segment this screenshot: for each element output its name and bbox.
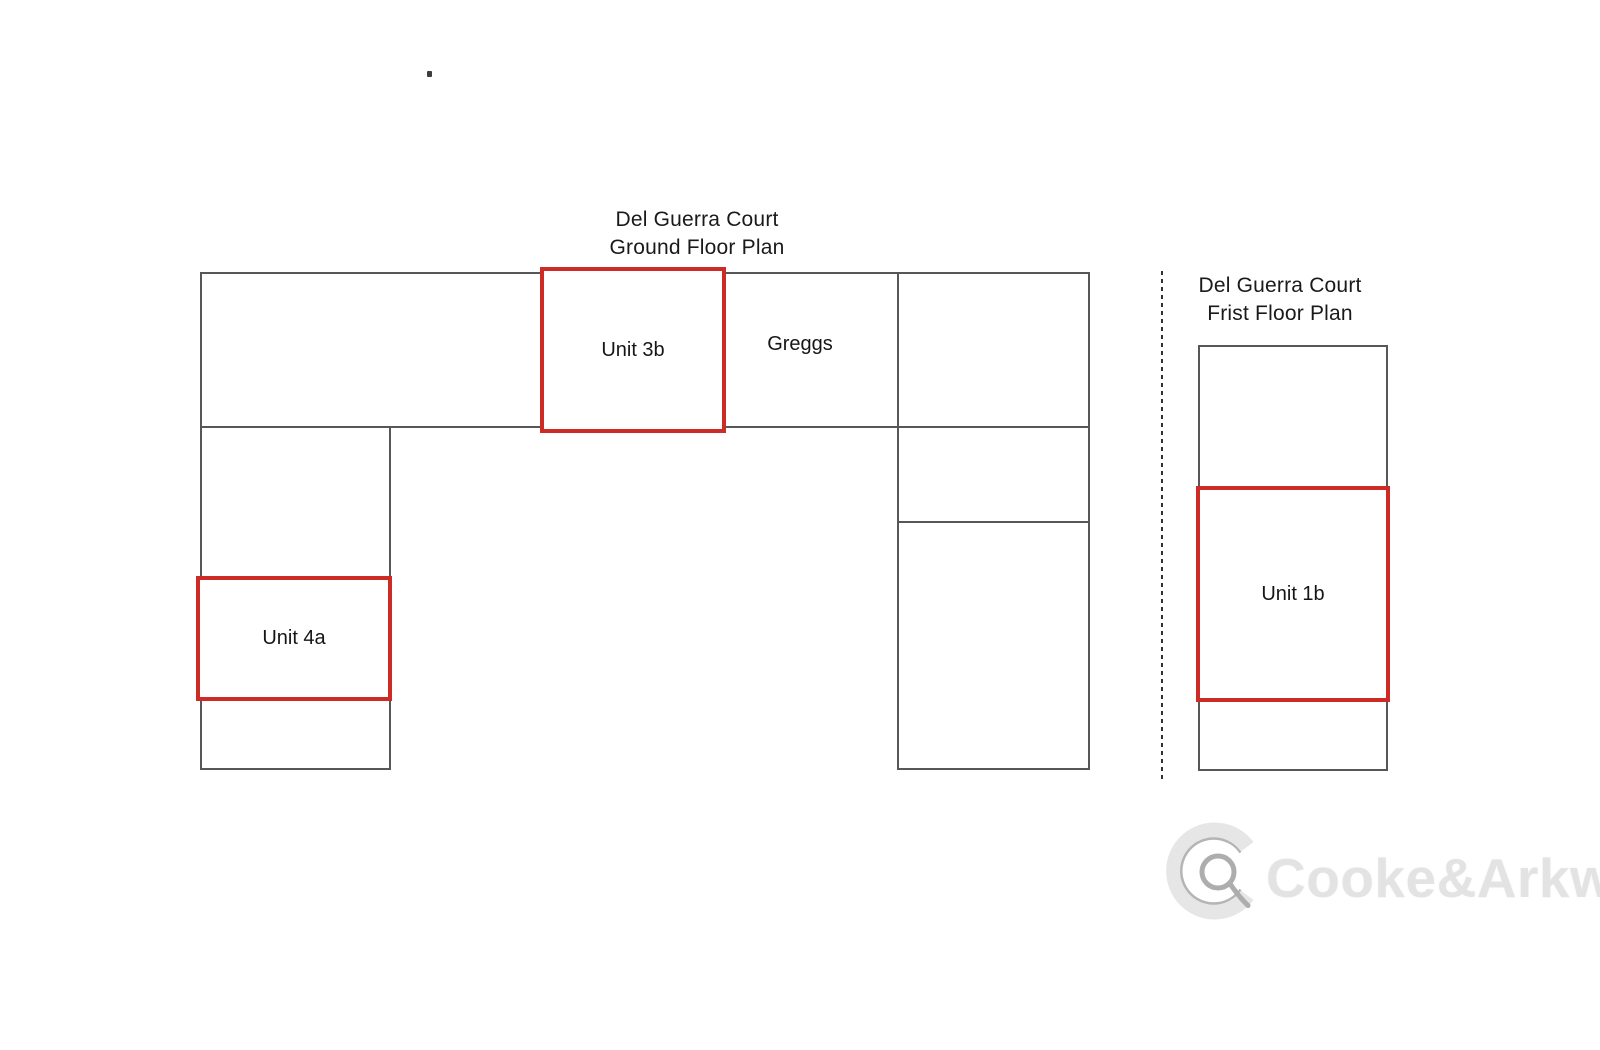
cooke-arkwright-ca-monogram-icon xyxy=(1160,810,1268,938)
first-floor-title-line1: Del Guerra Court xyxy=(1105,272,1455,300)
floor-separator-dashed-line xyxy=(1161,271,1163,782)
unit-1b-room: Unit 1b xyxy=(1196,486,1390,702)
unit-4a-room: Unit 4a xyxy=(196,576,392,701)
unit-3b-room: Unit 3b xyxy=(540,267,726,433)
stray-scan-mark xyxy=(427,71,432,77)
ground-floor-title-line1: Del Guerra Court xyxy=(522,206,872,234)
ground-floor-title-line2: Ground Floor Plan xyxy=(522,234,872,262)
ground-floor-title: Del Guerra Court Ground Floor Plan xyxy=(522,206,872,262)
right-block-divider-line xyxy=(899,521,1088,523)
unit-1b-label: Unit 1b xyxy=(1261,583,1324,606)
unit-3b-label: Unit 3b xyxy=(601,339,664,362)
floor-plan-document: Del Guerra Court Ground Floor Plan Unit … xyxy=(0,0,1600,1050)
greggs-label: Greggs xyxy=(740,333,860,356)
unit-4a-label: Unit 4a xyxy=(262,627,325,650)
first-floor-title-line2: Frist Floor Plan xyxy=(1105,300,1455,328)
first-floor-title: Del Guerra Court Frist Floor Plan xyxy=(1105,272,1455,328)
watermark-brand-text: Cooke&Arkwright xyxy=(1266,846,1600,910)
